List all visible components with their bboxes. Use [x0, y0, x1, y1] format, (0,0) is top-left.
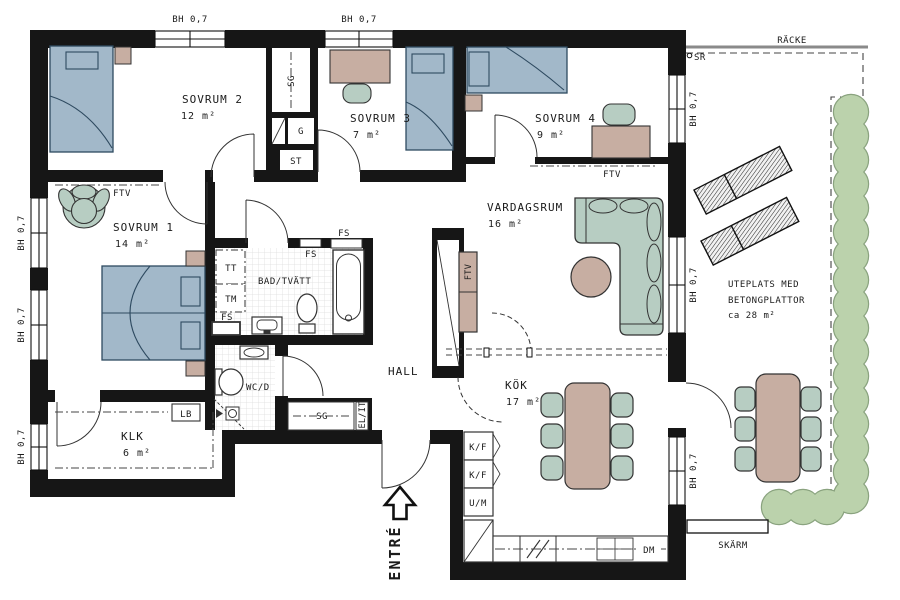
vardagsrum-furniture	[571, 198, 663, 335]
skarm-screen	[687, 520, 768, 533]
kok-dining-set	[541, 383, 633, 489]
outdoor-chair	[801, 447, 821, 471]
el-it-label: EL/IT	[358, 401, 368, 428]
floor-plan-drawing: BH 0,7 BH 0,7 BH 0,7 BH 0,7 BH 0,7 BH 0,…	[0, 0, 900, 600]
outdoor-chair	[735, 417, 755, 441]
nightstand	[186, 361, 205, 376]
sovrum4-furniture	[465, 47, 650, 158]
nightstand	[115, 47, 131, 64]
door-dashed-vardagsrum	[492, 313, 531, 352]
nightstand	[465, 95, 482, 111]
window	[669, 237, 685, 333]
dashed-partition	[446, 348, 667, 357]
window	[669, 437, 685, 505]
desk	[592, 126, 650, 158]
dining-chair	[541, 424, 563, 448]
room-label-hall: HALL	[388, 365, 419, 378]
outdoor-chair	[735, 387, 755, 411]
room-area-sovrum2: 12 m²	[181, 111, 216, 122]
pillow	[181, 277, 200, 306]
room-area-klk: 6 m²	[123, 448, 151, 459]
window	[155, 31, 225, 47]
outdoor-chair	[735, 447, 755, 471]
window-height-label: BH 0,7	[689, 453, 699, 489]
ftv-label: FTV	[603, 170, 621, 180]
window-height-label: BH 0,7	[689, 267, 699, 303]
door-entry	[382, 440, 430, 488]
nightstand	[186, 251, 205, 266]
room-label-klk: KLK	[121, 430, 144, 443]
dining-chair	[541, 456, 563, 480]
sink	[252, 317, 282, 334]
toilet	[215, 369, 243, 395]
room-label-sovrum2: SOVRUM 2	[182, 93, 243, 106]
room-label-sovrum1: SOVRUM 1	[113, 221, 174, 234]
kf-label: K/F	[469, 471, 487, 481]
door-wc	[283, 356, 323, 396]
pillow	[412, 54, 444, 73]
door-klk	[57, 402, 101, 446]
tm-label: TM	[225, 295, 237, 305]
window-height-label: BH 0,7	[172, 15, 208, 25]
floor-plan: BH 0,7 BH 0,7 BH 0,7 BH 0,7 BH 0,7 BH 0,…	[0, 0, 900, 600]
door-sovrum1	[165, 182, 207, 224]
room-area-sovrum4: 9 m²	[537, 130, 565, 141]
ftv-label: FTV	[464, 264, 474, 280]
outdoor-chair	[801, 417, 821, 441]
uteplats-label-line2: BETONGPLATTOR	[728, 296, 805, 306]
room-area-sovrum3: 7 m²	[353, 130, 381, 141]
wall-niche	[331, 239, 362, 248]
desk	[330, 50, 390, 83]
room-area-kok: 17 m²	[506, 397, 541, 408]
dining-table	[565, 383, 610, 489]
coffee-table	[571, 257, 611, 297]
dining-chair	[541, 393, 563, 417]
tt-label: TT	[225, 264, 237, 274]
sr-label: SR	[694, 53, 706, 63]
room-label-bad-tvatt: BAD/TVÄTT	[258, 276, 311, 287]
st-label: ST	[290, 157, 302, 167]
ftv-label: FTV	[113, 189, 131, 199]
room-label-kok: KÖK	[505, 379, 528, 392]
sovrum1-furniture	[55, 185, 205, 376]
room-label-sovrum4: SOVRUM 4	[535, 112, 596, 125]
fs-label: FS	[305, 250, 317, 260]
wall-niche	[300, 239, 321, 247]
pillow	[66, 52, 98, 69]
desk-chair	[603, 104, 635, 125]
outdoor-table	[756, 374, 800, 482]
sg-label: SG	[287, 75, 297, 87]
door-sovrum4	[495, 115, 537, 157]
room-label-wc-d: WC/D	[246, 383, 270, 393]
um-label: U/M	[469, 499, 487, 509]
g-label: G	[298, 127, 304, 137]
lb-label: LB	[180, 410, 192, 420]
window	[31, 290, 47, 360]
door-sovrum2	[211, 134, 254, 177]
outdoor-dining-set	[735, 374, 821, 482]
toilet	[297, 294, 317, 333]
terrace	[686, 47, 868, 533]
outdoor-chair	[801, 387, 821, 411]
armchair	[55, 185, 113, 228]
door-terrace	[686, 383, 731, 428]
room-area-vardagsrum: 16 m²	[488, 219, 523, 230]
sovrum2-furniture	[50, 46, 131, 152]
pillow	[181, 322, 200, 349]
window	[669, 75, 685, 143]
dining-chair	[611, 424, 633, 448]
sr-marker-icon	[687, 53, 692, 58]
uteplats-area: ca 28 m²	[728, 311, 775, 321]
entre-label: ENTRÉ	[385, 525, 404, 580]
laundry-cabinet	[212, 322, 240, 335]
fs-label: FS	[221, 313, 233, 323]
window-height-label: BH 0,7	[17, 215, 27, 251]
window-height-label: BH 0,7	[689, 91, 699, 127]
room-label-sovrum3: SOVRUM 3	[350, 112, 411, 125]
window-height-label: BH 0,7	[17, 307, 27, 343]
sovrum3-furniture	[330, 47, 453, 150]
room-label-vardagsrum: VARDAGSRUM	[487, 201, 563, 214]
window	[31, 198, 47, 268]
window-height-label: BH 0,7	[341, 15, 377, 25]
uteplats-label-line1: UTEPLATS MED	[728, 280, 799, 290]
window	[325, 31, 393, 47]
pillow	[469, 52, 489, 86]
dm-label: DM	[643, 546, 655, 556]
dining-chair	[611, 393, 633, 417]
kf-label: K/F	[469, 443, 487, 453]
sg-label: SG	[316, 412, 328, 422]
room-area-sovrum1: 14 m²	[115, 239, 150, 250]
racke-label: RÄCKE	[777, 35, 807, 46]
skarm-label: SKÄRM	[718, 540, 748, 551]
sink	[240, 346, 268, 359]
door-dashed-kok	[458, 377, 503, 422]
entry-arrow-icon	[385, 487, 415, 519]
desk-chair	[343, 84, 371, 103]
door-bathroom	[246, 200, 288, 243]
dining-chair	[611, 456, 633, 480]
window-height-label: BH 0,7	[17, 429, 27, 465]
window	[31, 424, 47, 470]
shaft	[437, 240, 477, 366]
fs-label: FS	[338, 229, 350, 239]
